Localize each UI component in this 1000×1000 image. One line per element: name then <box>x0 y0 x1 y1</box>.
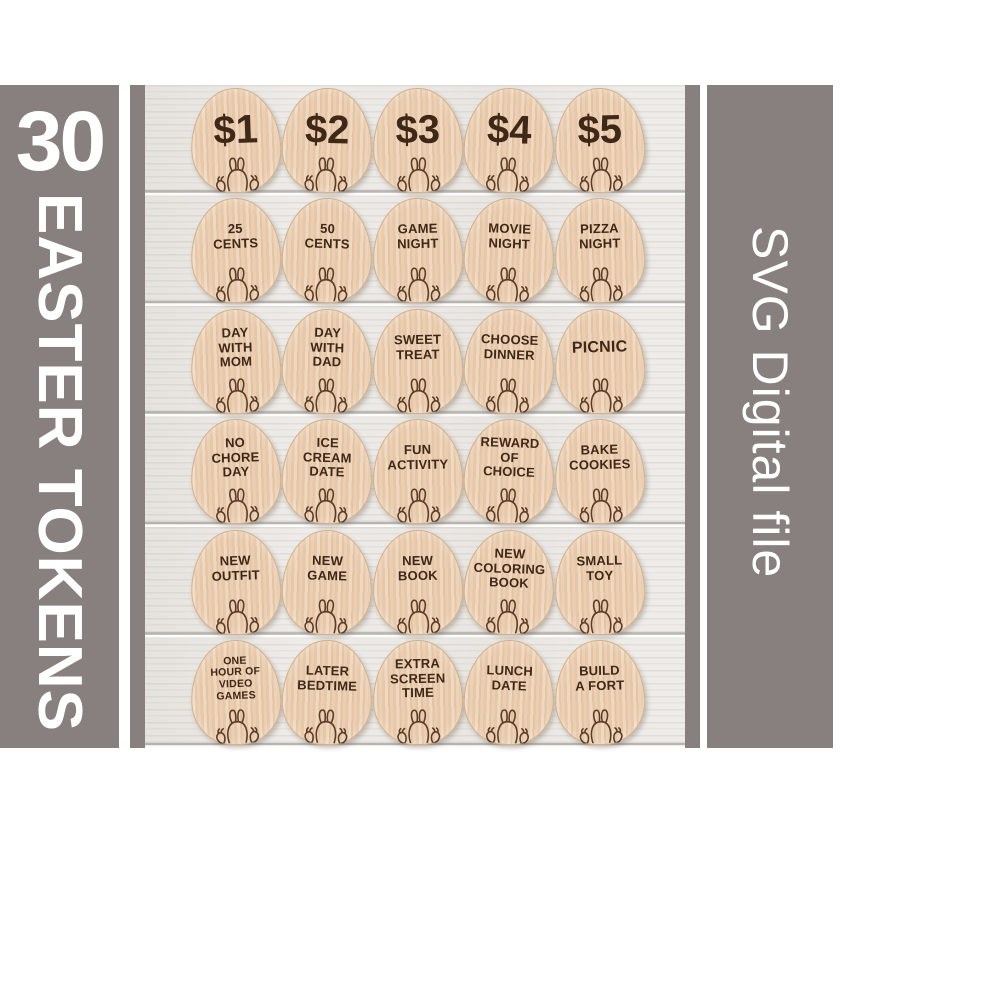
token-label-line: NEW <box>402 554 433 569</box>
token-label: NEWBOOK <box>376 539 459 598</box>
bunny-icon <box>572 264 629 302</box>
token-label: LUNCHDATE <box>467 649 551 710</box>
token-cell: ICECREAMDATE <box>282 417 373 528</box>
bunny-icon <box>390 706 447 744</box>
token-cell: NEWGAME <box>282 527 373 638</box>
bunny-icon <box>572 153 629 191</box>
token-label: NEWOUTFIT <box>194 538 278 599</box>
bunny-icon <box>298 153 355 191</box>
token-label: ONEHOUR OFVIDEOGAMES <box>194 649 278 710</box>
token-cell: $5 <box>554 85 645 196</box>
token-label: BAKECOOKIES <box>557 428 640 488</box>
easter-egg-token: ICECREAMDATE <box>281 418 374 525</box>
bunny-icon <box>572 485 629 523</box>
token-cell: ONEHOUR OFVIDEOGAMES <box>191 638 282 749</box>
easter-egg-token: ONEHOUR OFVIDEOGAMES <box>190 639 284 747</box>
token-label-line: DAY <box>222 325 249 340</box>
bunny-icon <box>298 485 355 523</box>
bunny-icon <box>298 374 355 412</box>
easter-egg-token: LATERBEDTIME <box>281 639 374 746</box>
token-label: 25CENTS <box>194 207 278 268</box>
token-cell: LUNCHDATE <box>463 638 554 749</box>
bunny-icon <box>390 374 447 412</box>
easter-egg-token: PICNIC <box>553 308 646 415</box>
token-label: ICECREAMDATE <box>286 428 369 488</box>
token-label: PIZZANIGHT <box>557 207 640 267</box>
token-label-line: NIGHT <box>488 237 530 253</box>
token-cell: PICNIC <box>554 306 645 417</box>
token-count: 30 <box>16 99 103 183</box>
token-cell: $3 <box>373 85 464 196</box>
token-cell: SMALLTOY <box>554 527 645 638</box>
token-label-line: $3 <box>395 107 440 153</box>
token-cell: $2 <box>282 85 373 196</box>
token-label-line: DAD <box>313 355 342 370</box>
easter-egg-token: BUILDA FORT <box>553 639 646 746</box>
token-label-line: CENTS <box>305 237 350 253</box>
token-label: $5 <box>557 97 641 163</box>
bunny-icon <box>479 705 536 744</box>
token-cell: NOCHOREDAY <box>191 417 282 528</box>
easter-egg-token: DAYWITHDAD <box>281 308 374 415</box>
token-label-line: COOKIES <box>569 457 631 473</box>
easter-egg-token: GAMENIGHT <box>372 197 464 304</box>
token-label: SWEETTREAT <box>376 318 459 377</box>
easter-egg-token: SMALLTOY <box>553 529 646 636</box>
easter-egg-token: NEWOUTFIT <box>190 528 284 636</box>
easter-egg-token: NOCHOREDAY <box>190 418 284 526</box>
bunny-icon <box>572 706 629 744</box>
token-label-line: MOM <box>220 354 253 370</box>
token-label-line: A FORT <box>575 679 624 695</box>
bunny-icon <box>209 705 266 744</box>
token-label-line: CHOICE <box>483 465 535 481</box>
bunny-icon <box>298 264 355 302</box>
token-cell: REWARDOFCHOICE <box>463 417 554 528</box>
easter-egg-token: $3 <box>372 87 464 194</box>
bunny-icon <box>209 153 266 192</box>
token-label-line: $4 <box>486 107 532 153</box>
token-cell: SWEETTREAT <box>373 306 464 417</box>
bunny-icon <box>479 153 536 192</box>
easter-egg-token: LUNCHDATE <box>462 639 556 747</box>
token-label-line: PICNIC <box>571 338 627 357</box>
wood-plank-background: $1$2$3$4$525CENTS50CENTSGAMENIGHTMOVIENI… <box>145 85 685 748</box>
easter-egg-token: FUNACTIVITY <box>372 418 464 525</box>
token-cell: NEWBOOK <box>373 527 464 638</box>
token-label: EXTRASCREENTIME <box>376 650 459 709</box>
token-cell: CHOOSEDINNER <box>463 306 554 417</box>
bunny-icon <box>209 263 266 302</box>
bunny-icon <box>390 485 447 523</box>
right-banner: SVG Digital file <box>707 85 833 748</box>
bunny-icon <box>209 484 266 523</box>
token-cell: DAYWITHMOM <box>191 306 282 417</box>
left-banner-title: EASTER TOKENS <box>24 193 95 732</box>
easter-egg-token: $1 <box>190 86 284 194</box>
token-label: NOCHOREDAY <box>194 428 278 489</box>
token-label: NEWCOLORINGBOOK <box>467 538 551 599</box>
token-label-line: TREAT <box>396 347 440 362</box>
token-label-line: ACTIVITY <box>387 458 448 474</box>
bunny-icon <box>390 595 447 633</box>
easter-egg-token: CHOOSEDINNER <box>462 307 556 415</box>
bunny-icon <box>572 374 629 412</box>
easter-egg-token: SWEETTREAT <box>372 308 464 415</box>
token-label: MOVIENIGHT <box>467 207 551 268</box>
token-label-line: TIME <box>402 686 434 701</box>
bunny-icon <box>209 595 266 634</box>
bunny-icon <box>479 374 536 413</box>
token-cell: NEWOUTFIT <box>191 527 282 638</box>
token-label-line: $5 <box>576 107 622 153</box>
left-banner: 30 EASTER TOKENS <box>0 85 119 748</box>
token-label-line: BOOK <box>398 568 438 583</box>
token-label-line: DAY <box>223 465 250 480</box>
token-label: GAMENIGHT <box>376 208 459 267</box>
token-label-line: $1 <box>213 107 259 153</box>
easter-egg-token: NEWCOLORINGBOOK <box>462 528 556 636</box>
token-label-line: DINNER <box>483 347 535 363</box>
token-label-line: BEDTIME <box>297 678 357 694</box>
easter-egg-token: NEWBOOK <box>372 529 464 636</box>
bunny-icon <box>390 153 447 191</box>
token-label-line: DATE <box>491 679 527 695</box>
token-label-line: TOY <box>586 568 613 583</box>
bunny-icon <box>209 374 266 413</box>
easter-egg-token: REWARDOFCHOICE <box>462 418 556 526</box>
easter-egg-token: $4 <box>462 86 556 194</box>
token-label-line: GAMES <box>217 690 257 703</box>
easter-egg-token: $2 <box>281 87 374 194</box>
token-label-line: OUTFIT <box>212 568 261 584</box>
token-cell: EXTRASCREENTIME <box>373 638 464 749</box>
token-label-line: $2 <box>305 107 351 153</box>
token-cell: FUNACTIVITY <box>373 417 464 528</box>
easter-egg-token: 50CENTS <box>281 197 374 304</box>
token-label-line: NIGHT <box>579 237 621 253</box>
token-label-line: NIGHT <box>397 237 439 252</box>
token-label: PICNIC <box>557 318 640 378</box>
token-label: $3 <box>376 97 459 162</box>
token-label: CHOOSEDINNER <box>467 317 551 378</box>
token-label-line: GAME <box>307 568 347 584</box>
bunny-icon <box>298 595 355 633</box>
token-label-line: DATE <box>309 465 345 480</box>
token-label-line: SMALL <box>576 554 622 570</box>
token-cell: GAMENIGHT <box>373 196 464 307</box>
easter-egg-token: $5 <box>553 87 646 194</box>
token-label-line: CENTS <box>213 236 259 252</box>
bunny-icon <box>298 706 355 744</box>
token-label: SMALLTOY <box>557 539 640 599</box>
easter-egg-token: MOVIENIGHT <box>462 197 556 305</box>
token-cell: BAKECOOKIES <box>554 417 645 528</box>
token-cell: DAYWITHDAD <box>282 306 373 417</box>
token-label: LATERBEDTIME <box>286 649 369 709</box>
easter-egg-token: PIZZANIGHT <box>553 197 646 304</box>
token-cell: 50CENTS <box>282 196 373 307</box>
token-label: NEWGAME <box>286 539 369 599</box>
token-cell: PIZZANIGHT <box>554 196 645 307</box>
token-label: DAYWITHDAD <box>286 318 369 378</box>
right-banner-title: SVG Digital file <box>741 226 799 578</box>
easter-egg-token: BAKECOOKIES <box>553 418 646 525</box>
bunny-icon <box>479 484 536 523</box>
bunny-icon <box>479 595 536 634</box>
token-label-line: BOOK <box>489 575 529 591</box>
token-label: FUNACTIVITY <box>376 429 459 488</box>
bunny-icon <box>479 263 536 302</box>
easter-egg-token: DAYWITHMOM <box>190 307 284 415</box>
token-label: REWARDOFCHOICE <box>467 428 551 489</box>
token-label: BUILDA FORT <box>557 649 640 709</box>
token-cell: NEWCOLORINGBOOK <box>463 527 554 638</box>
bunny-icon <box>390 264 447 302</box>
token-label: 50CENTS <box>286 207 369 267</box>
token-label-line: DAY <box>314 326 341 341</box>
token-grid: $1$2$3$4$525CENTS50CENTSGAMENIGHTMOVIENI… <box>191 85 645 748</box>
token-cell: 25CENTS <box>191 196 282 307</box>
easter-egg-token: NEWGAME <box>281 529 374 636</box>
token-cell: $4 <box>463 85 554 196</box>
easter-egg-token: EXTRASCREENTIME <box>372 639 464 746</box>
token-cell: LATERBEDTIME <box>282 638 373 749</box>
bunny-icon <box>572 595 629 633</box>
token-label: DAYWITHMOM <box>194 317 278 378</box>
token-cell: MOVIENIGHT <box>463 196 554 307</box>
token-cell: $1 <box>191 85 282 196</box>
product-image: $1$2$3$4$525CENTS50CENTSGAMENIGHTMOVIENI… <box>130 85 700 748</box>
easter-egg-token: 25CENTS <box>190 197 284 305</box>
token-cell: BUILDA FORT <box>554 638 645 749</box>
